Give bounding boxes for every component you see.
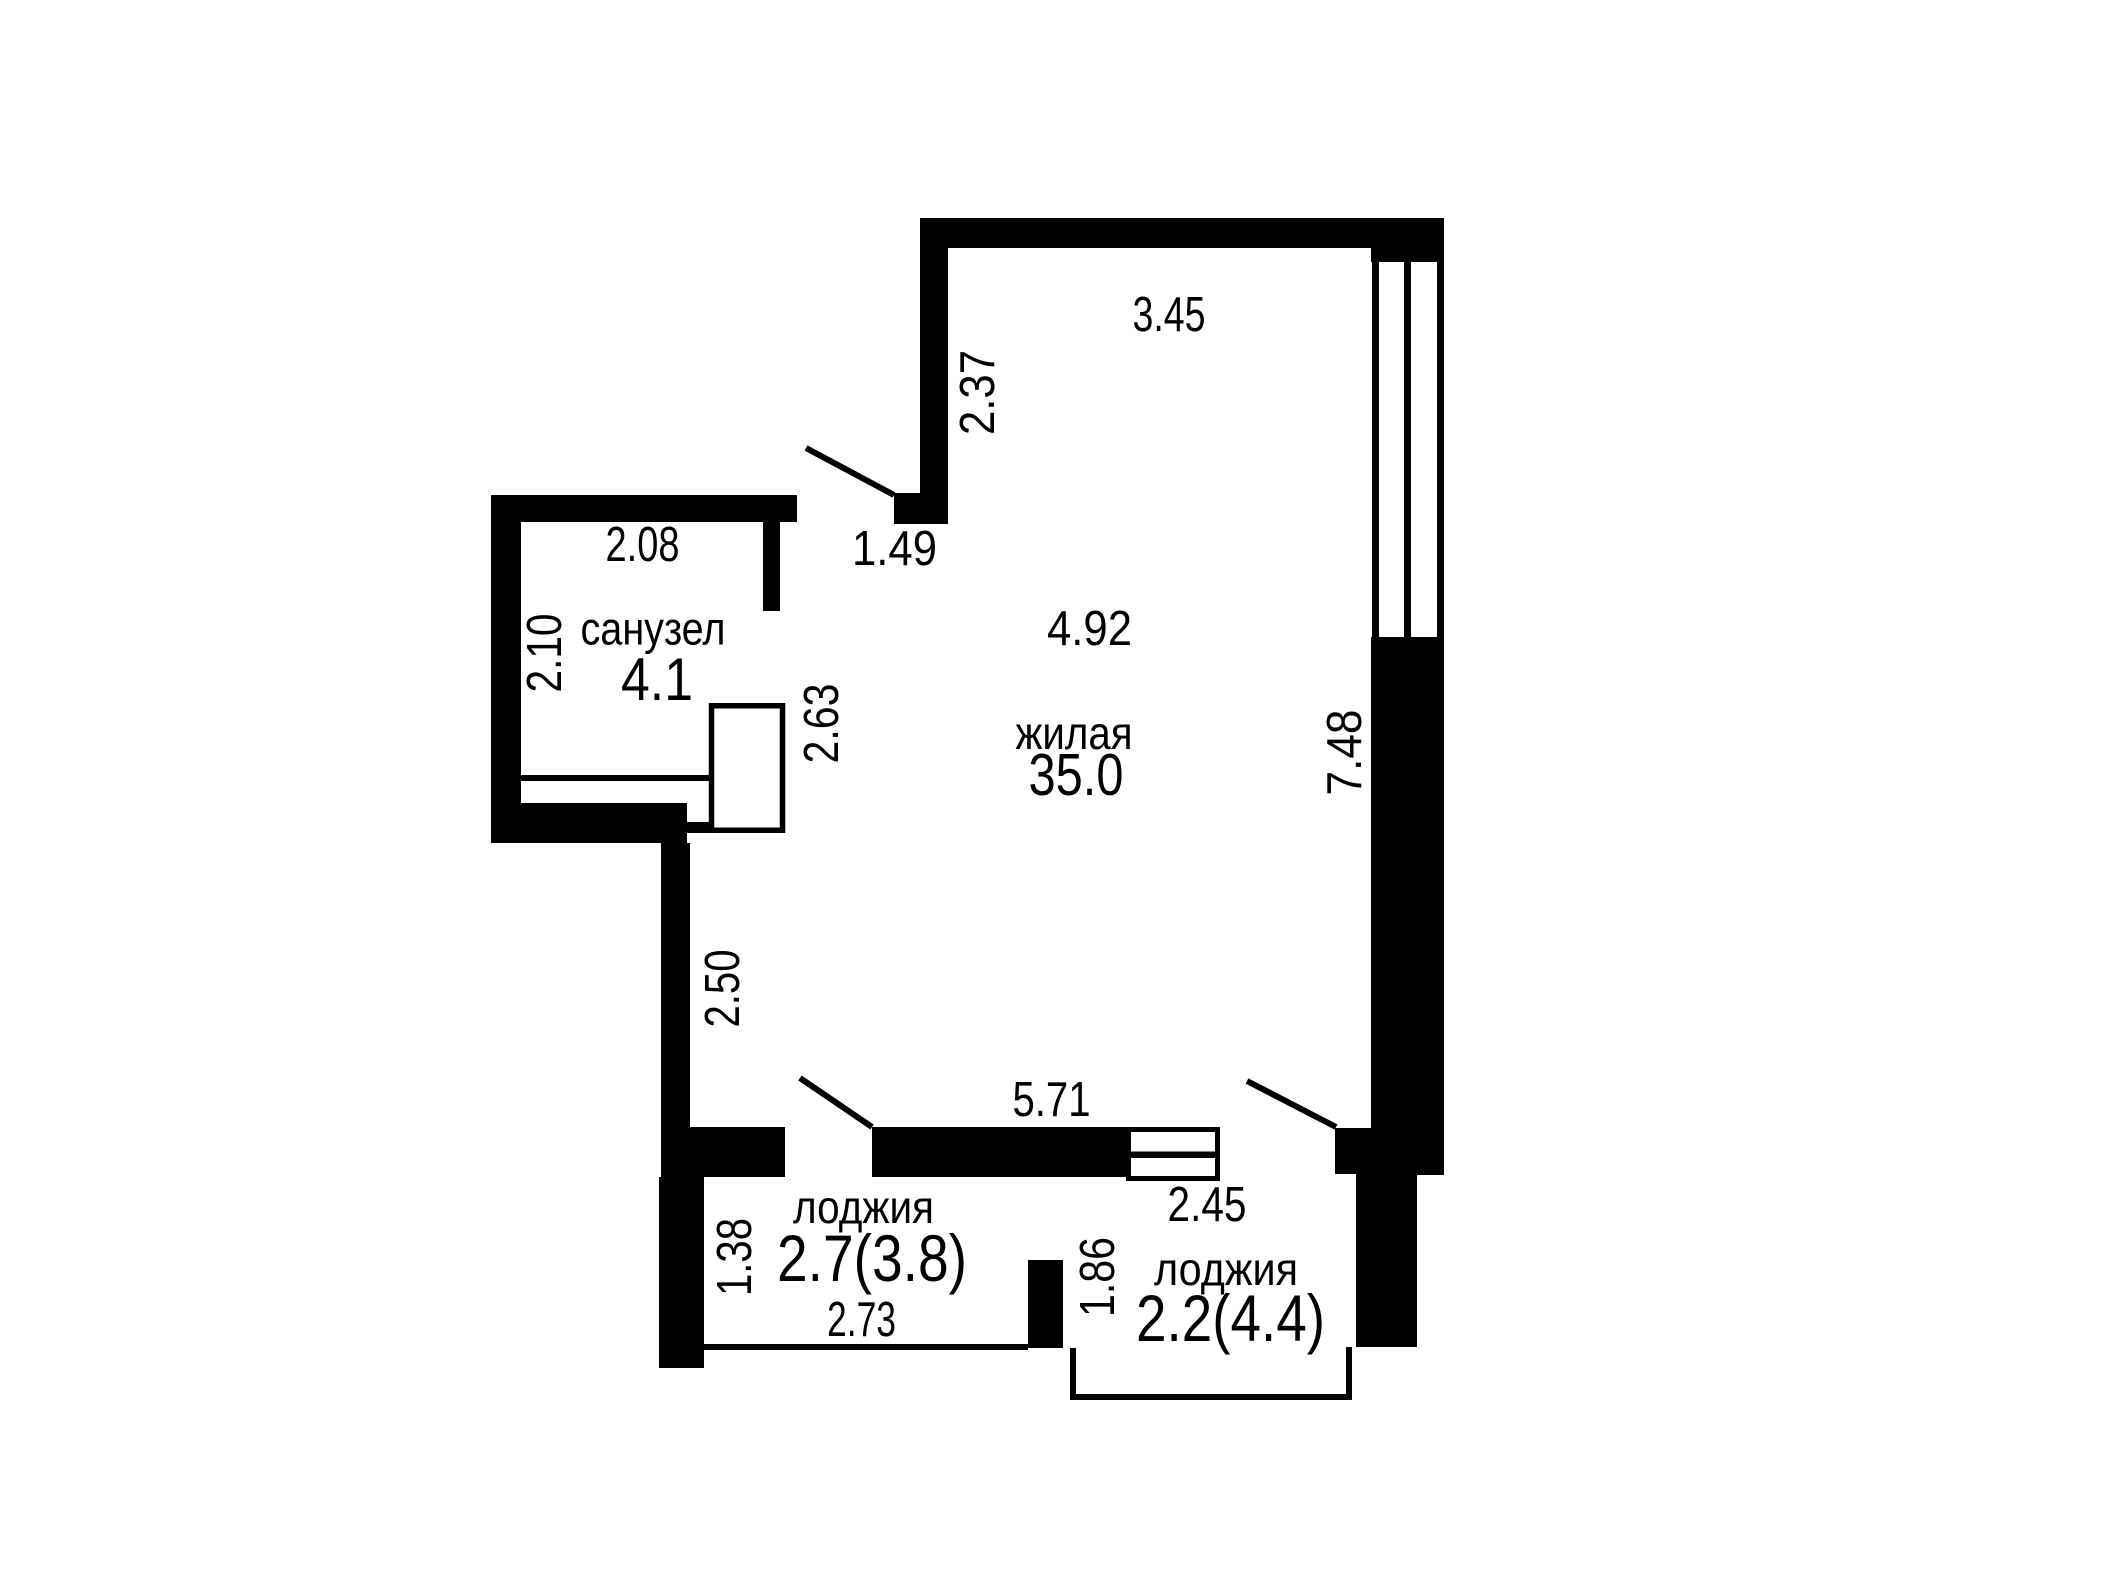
- svg-text:2.2(4.4): 2.2(4.4): [1136, 1281, 1325, 1355]
- svg-text:2.37: 2.37: [951, 350, 1005, 435]
- svg-text:2.50: 2.50: [696, 950, 750, 1028]
- svg-text:2.7(3.8): 2.7(3.8): [777, 1221, 967, 1295]
- svg-text:1.38: 1.38: [708, 1218, 762, 1296]
- svg-text:2.08: 2.08: [606, 518, 680, 572]
- svg-text:1.86: 1.86: [1071, 1237, 1125, 1317]
- svg-text:2.45: 2.45: [1168, 1178, 1247, 1232]
- svg-text:3.45: 3.45: [1133, 288, 1206, 342]
- svg-text:5.71: 5.71: [1013, 1073, 1091, 1127]
- svg-text:1.49: 1.49: [852, 522, 937, 576]
- svg-text:35.0: 35.0: [1029, 742, 1124, 808]
- svg-text:4.1: 4.1: [621, 646, 693, 713]
- svg-text:2.10: 2.10: [518, 614, 572, 693]
- svg-text:2.73: 2.73: [827, 1293, 896, 1347]
- svg-text:2.63: 2.63: [795, 684, 849, 764]
- svg-text:4.92: 4.92: [1047, 602, 1132, 656]
- svg-text:7.48: 7.48: [1318, 710, 1372, 796]
